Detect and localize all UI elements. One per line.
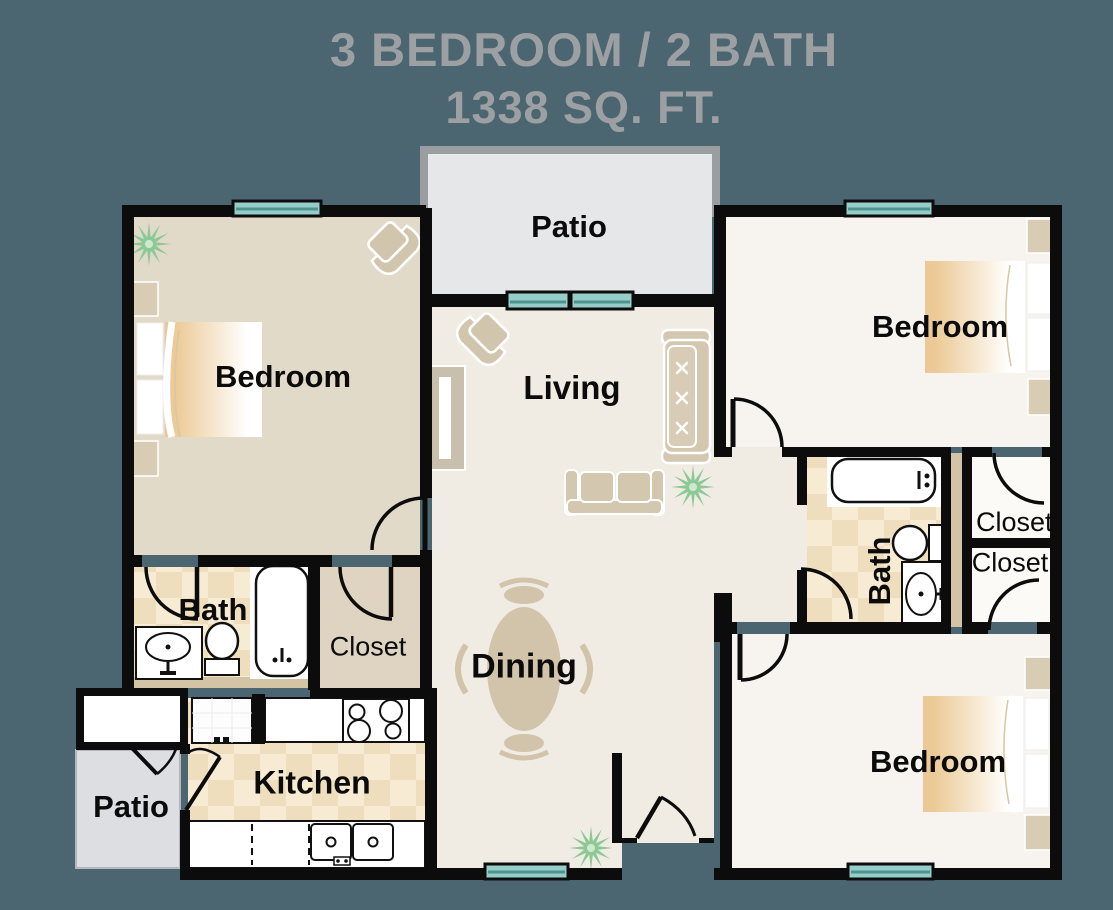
plan-title-line1: 3 BEDROOM / 2 BATH (330, 22, 838, 77)
window-icon (845, 201, 933, 216)
stove-icon (343, 699, 409, 742)
sink-icon (902, 562, 946, 624)
sink-icon (136, 627, 202, 679)
nightstand-icon (1027, 219, 1053, 253)
toilet-icon (205, 623, 239, 675)
room-label-closet-left: Closet (330, 632, 407, 663)
room-label-bedroom-top-right: Bedroom (872, 309, 1008, 345)
room-label-bath-left: Bath (179, 592, 248, 628)
sliding-door-icon (507, 292, 633, 309)
toilet-icon (893, 525, 944, 561)
bathtub-icon (827, 455, 941, 507)
dining-chair-icon (504, 586, 544, 604)
kitchen-sink-icon (188, 821, 425, 868)
dining-chair-icon (504, 734, 544, 752)
room-label-kitchen: Kitchen (253, 765, 370, 802)
nightstand-icon (1025, 657, 1051, 690)
plant-icon (689, 483, 697, 491)
refrigerator-icon (192, 698, 252, 743)
bathtub-icon (250, 561, 310, 679)
plant-icon (587, 844, 595, 852)
nightstand-icon (132, 282, 158, 316)
nightstand-icon (132, 441, 158, 476)
room-label-dining: Dining (471, 648, 577, 687)
room-label-closet-right-top: Closet (976, 506, 1050, 538)
window-icon (485, 864, 568, 879)
sofa-icon (662, 330, 710, 463)
storage-closet-icon (84, 696, 180, 742)
tv-console-icon (431, 366, 465, 470)
room-label-bedroom-left: Bedroom (215, 359, 351, 395)
room-label-patio-top: Patio (531, 209, 607, 245)
room-label-bedroom-bottom-right: Bedroom (870, 744, 1006, 780)
floorplan-page: 3 BEDROOM / 2 BATH 1338 SQ. FT. (0, 0, 1113, 910)
plan-title-line2: 1338 SQ. FT. (445, 82, 722, 134)
nightstand-icon (1025, 815, 1051, 850)
loveseat-icon (565, 470, 664, 515)
room-label-closet-right-bottom: Closet (972, 548, 1049, 579)
room-label-patio-bottom: Patio (93, 789, 169, 825)
room-label-bath-right: Bath (862, 537, 898, 606)
room-label-living: Living (523, 369, 620, 407)
window-icon (233, 201, 321, 216)
window-icon (848, 864, 933, 879)
plant-icon (145, 240, 153, 248)
